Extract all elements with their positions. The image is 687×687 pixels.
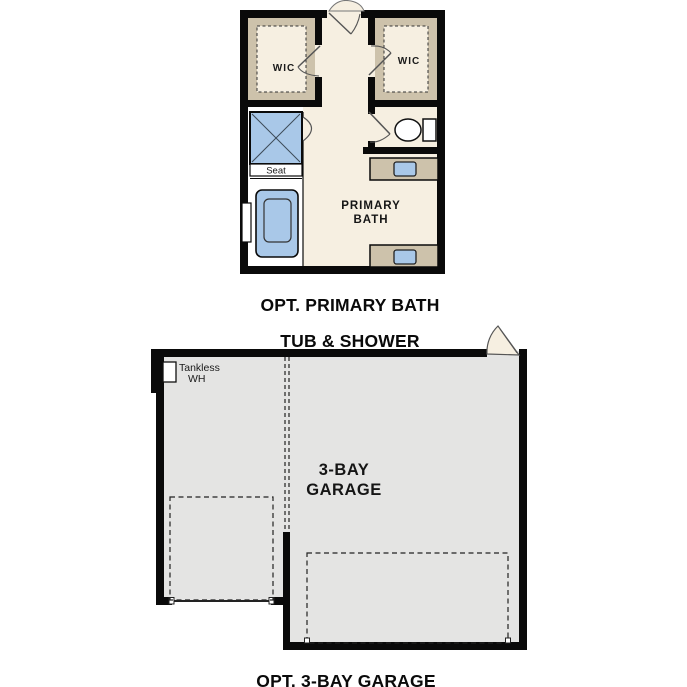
bathtub	[256, 190, 298, 257]
garage-plan: Tankless WH 3-BAY GARAGE	[148, 318, 538, 658]
wall-segment	[283, 532, 290, 650]
garage-caption-line1: OPT. 3-BAY GARAGE	[216, 672, 476, 687]
floorplan-sheet: Seat	[0, 0, 687, 687]
door-jamb-block	[506, 638, 511, 643]
wic-left-room	[248, 18, 315, 100]
wall-segment	[368, 18, 375, 45]
door-jamb-block	[305, 638, 310, 643]
bath-caption-line1: OPT. PRIMARY BATH	[230, 296, 470, 314]
garage-label-line2: GARAGE	[306, 481, 381, 499]
wall-segment	[519, 349, 527, 650]
tub-outer	[256, 190, 298, 257]
primary-bath-plan: Seat	[236, 0, 450, 276]
vanity-bottom	[370, 245, 438, 267]
tankless-label-line2: WH	[188, 373, 206, 385]
wall-segment	[151, 349, 164, 393]
entry-door-fan	[329, 0, 364, 11]
toilet-icon	[395, 119, 436, 141]
wall-segment	[315, 18, 322, 45]
wall-segment	[437, 10, 445, 274]
tankless-wh-box	[163, 362, 176, 382]
garage-caption: OPT. 3-BAY GARAGE	[216, 654, 476, 687]
wall-segment	[240, 10, 327, 18]
primary-bath-label-line1: PRIMARY	[341, 200, 401, 212]
seat-label: Seat	[266, 166, 286, 177]
sink	[394, 250, 416, 264]
vanity-top	[370, 158, 438, 180]
shower: Seat	[250, 112, 312, 179]
garage-label-line1: 3-BAY	[319, 461, 370, 479]
wic-left-label: WIC	[273, 63, 295, 74]
garage-floor-left	[160, 351, 288, 601]
window	[242, 203, 251, 242]
wall-segment	[246, 100, 322, 107]
garage-entry-door-swing-icon	[487, 326, 519, 355]
wall-segment	[156, 349, 487, 357]
sink	[394, 162, 416, 176]
wall-segment	[368, 100, 445, 107]
wall-segment	[361, 10, 445, 18]
wic-right-label: WIC	[398, 56, 420, 67]
toilet-bowl	[395, 119, 421, 141]
door-fan	[487, 326, 519, 355]
toilet-tank	[423, 119, 436, 141]
wall-segment	[363, 147, 445, 154]
primary-bath-label-line2: BATH	[353, 214, 388, 226]
wic-left-interior	[257, 26, 306, 92]
